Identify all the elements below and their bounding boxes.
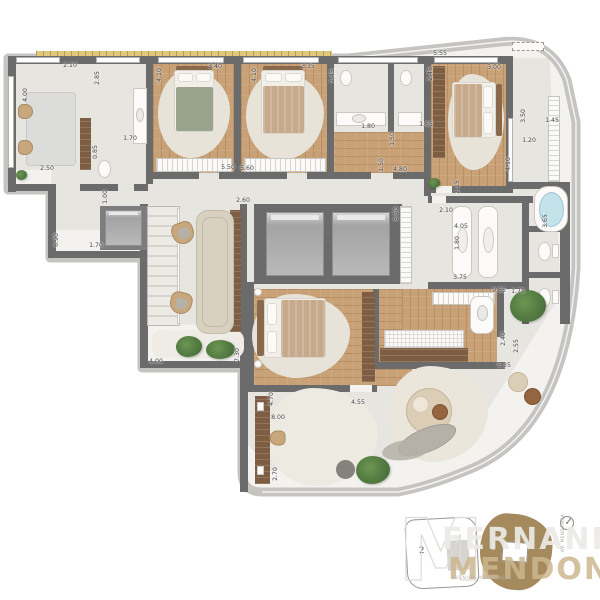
dimension-layer: 4.002.102.850.851.702.504.103.404.103.35… — [0, 0, 600, 600]
dimension-label: 2.45 — [428, 67, 434, 81]
dimension-label: 1.20 — [522, 138, 536, 144]
dimension-label: 4.00 — [149, 359, 163, 365]
dimension-label: 1.65 — [419, 122, 433, 128]
dimension-label: 4.00 — [23, 88, 29, 102]
dimension-label: 4.10 — [157, 68, 163, 82]
dimension-label: 0.85 — [93, 145, 99, 159]
dimension-label: 1.70 — [89, 243, 103, 249]
dimension-label: 5.50 — [221, 165, 235, 171]
street-label: AV. MENDONÇA — [560, 514, 565, 552]
dimension-label: 1.45 — [545, 118, 559, 124]
dimension-label: 2.40 — [501, 332, 507, 346]
dimension-label: 1.50 — [390, 132, 396, 146]
dimension-label: 5.35 — [497, 363, 511, 369]
dimension-label: 1.80 — [361, 124, 375, 130]
keyplan-caption: AVENIDA MENDONÇA — [452, 576, 510, 581]
dimension-label: 2.45 — [330, 69, 336, 83]
dimension-label: 2.10 — [439, 208, 453, 214]
dimension-label: 4.55 — [351, 400, 365, 406]
dimension-label: 2.60 — [236, 198, 250, 204]
dimension-label: 6.90 — [54, 233, 60, 247]
dimension-label: 1.75 — [511, 289, 525, 295]
dimension-label: 3.35 — [301, 64, 315, 70]
dimension-label: 3.40 — [208, 64, 222, 70]
dimension-label: 2.50 — [40, 166, 54, 172]
dimension-label: 4.70 — [269, 392, 275, 406]
dimension-label: 5.50 — [394, 207, 400, 221]
watermark-line2: MENDONÇA — [448, 552, 600, 587]
dimension-label: 8.00 — [271, 415, 285, 421]
dimension-label: 5.60 — [240, 166, 254, 172]
dimension-label: 3.75 — [453, 275, 467, 281]
dimension-label: 1.70 — [123, 136, 137, 142]
floor-plan-canvas: 4.002.102.850.851.702.504.103.404.103.35… — [0, 0, 600, 600]
dimension-label: 7.30 — [235, 348, 241, 362]
dimension-label: 5.55 — [433, 51, 447, 57]
dimension-label: 2.70 — [273, 467, 279, 481]
dimension-label: 2.55 — [514, 339, 520, 353]
dimension-label: 4.80 — [393, 167, 407, 173]
dimension-label: 4.10 — [506, 157, 512, 171]
dimension-label: 1.50 — [379, 158, 385, 172]
dimension-label: 1.80 — [455, 236, 461, 250]
dimension-label: 2.10 — [63, 63, 77, 69]
dimension-label: 4.05 — [454, 224, 468, 230]
dimension-label: 3.65 — [543, 214, 549, 228]
dimension-label: 3.50 — [521, 109, 527, 123]
dimension-label: 2.15 — [455, 180, 461, 194]
dimension-label: 9.65 — [492, 288, 506, 294]
dimension-label: 3.00 — [487, 65, 501, 71]
dimension-label: 1.00 — [103, 190, 109, 204]
dimension-label: 2.85 — [95, 71, 101, 85]
dimension-label: 4.10 — [252, 68, 258, 82]
